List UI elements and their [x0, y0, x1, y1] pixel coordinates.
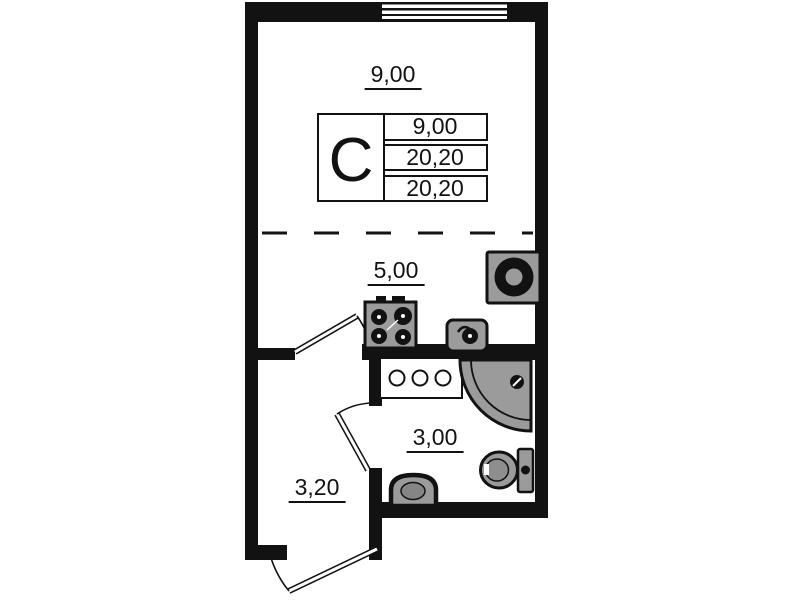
kitchen-door-icon [295, 316, 371, 352]
washbasin-icon [391, 475, 436, 506]
wall-kitchen-door-stub [258, 348, 295, 360]
unit-area-rows: 9,00 20,20 20,20 [383, 113, 488, 202]
wall-left [245, 2, 258, 560]
bathroom-area-label: 3,00 [407, 425, 464, 453]
washing-machine-icon [487, 252, 540, 303]
unit-area-row: 20,20 [383, 144, 488, 172]
unit-info-table: С 9,00 20,20 20,20 [317, 113, 488, 202]
window-icon [382, 5, 507, 20]
kitchen-area-label: 5,00 [368, 258, 425, 286]
toilet-icon [481, 449, 534, 492]
floor-plan-drawing [0, 0, 799, 600]
vanity-counter-icon [380, 358, 462, 398]
unit-area-row: 20,20 [383, 175, 488, 203]
bathroom-door-icon [337, 403, 374, 470]
stove-icon [365, 296, 416, 348]
floor-plan: 9,00 5,00 3,00 3,20 С 9,00 20,20 20,20 [0, 0, 799, 600]
main-room-area-label: 9,00 [365, 62, 422, 90]
shower-cabin-icon [460, 360, 531, 431]
kitchen-sink-icon [447, 320, 487, 351]
unit-type-letter: С [317, 113, 385, 202]
hallway-area-label: 3,20 [289, 475, 346, 503]
unit-area-row: 9,00 [383, 113, 488, 141]
wall-hall-bottom [245, 545, 287, 560]
